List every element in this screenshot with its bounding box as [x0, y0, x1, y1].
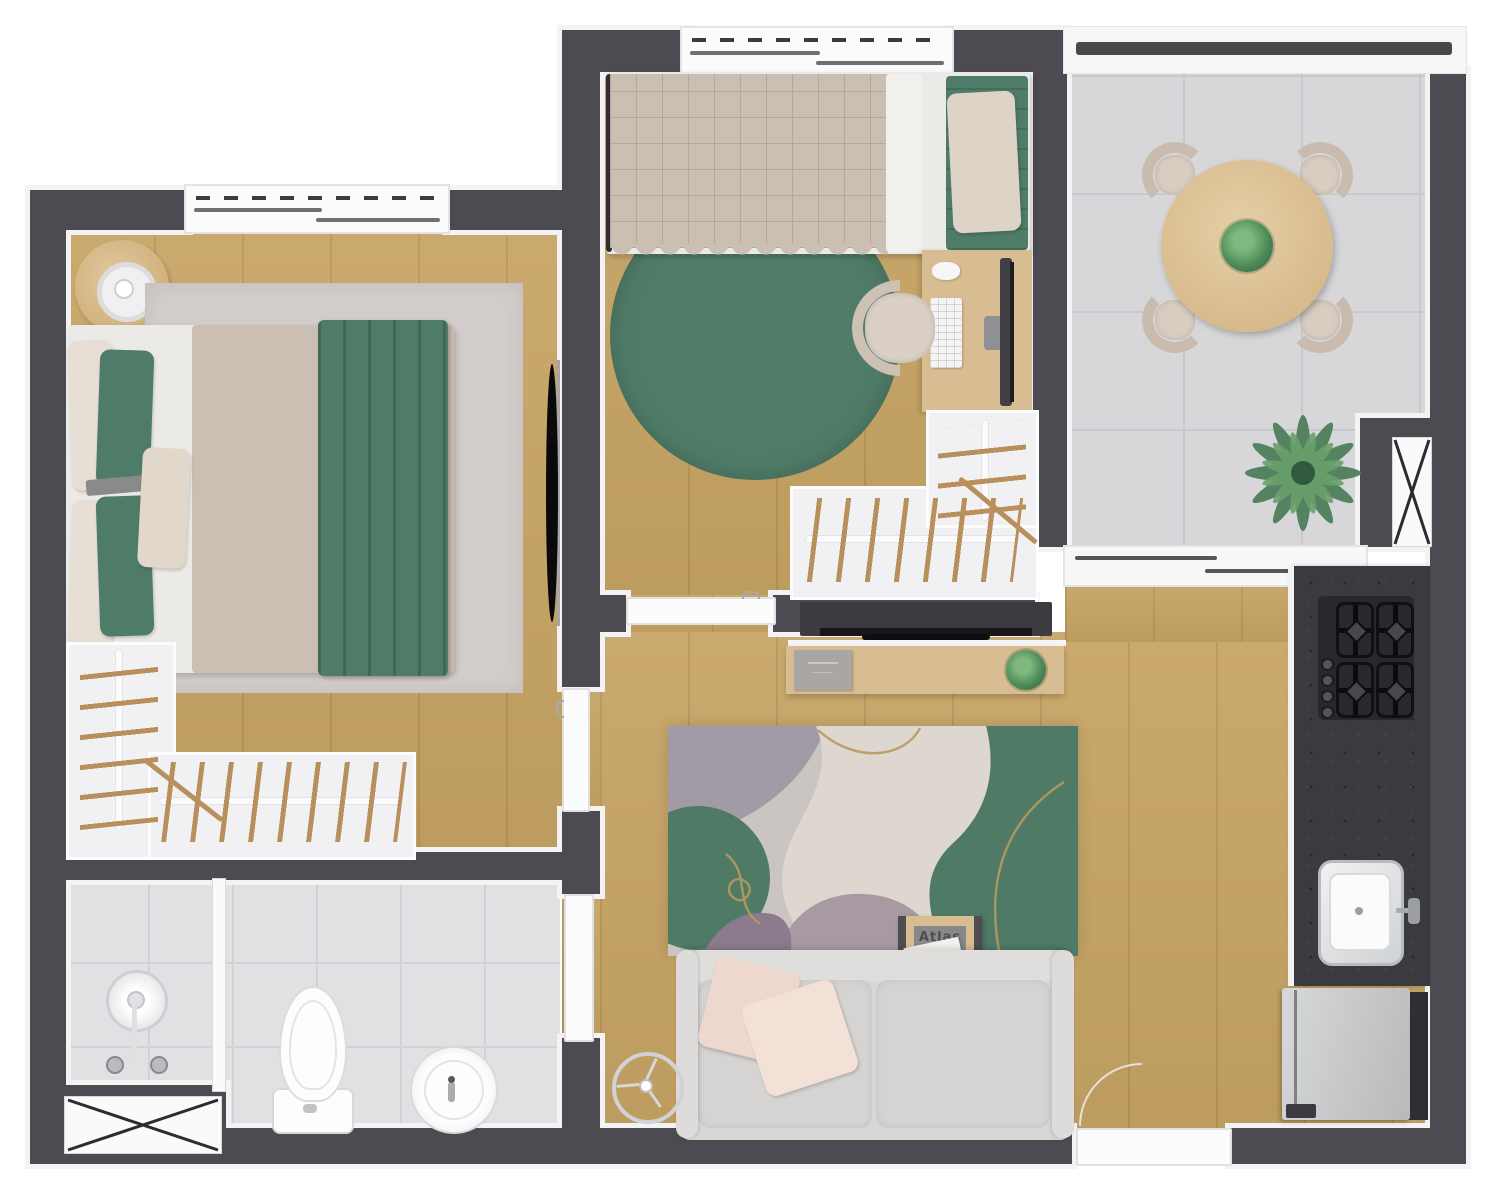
console-book	[794, 650, 852, 690]
kitchen-counter-edge	[1288, 566, 1294, 986]
office-chair-seat	[865, 293, 935, 363]
shower-knob	[106, 1056, 124, 1074]
bedroom1-double-bed	[68, 325, 454, 673]
shower-knob	[150, 1056, 168, 1074]
window-vent-dashes	[692, 38, 942, 42]
bedroom1-table-lamp-top	[114, 279, 134, 299]
shower-arm	[132, 1004, 137, 1062]
fridge-door-seam	[1294, 990, 1297, 1118]
bathroom-door-leaf	[564, 894, 594, 1042]
window-slider	[194, 208, 322, 212]
kitchen-faucet-handle	[1408, 898, 1420, 924]
wall-bedroom2-bottom-left	[598, 595, 626, 632]
bedroom2-door-leaf	[626, 597, 776, 625]
bedroom1-window	[184, 184, 450, 234]
utility-shaft-bathroom	[64, 1096, 222, 1154]
wall-bedroom1-top-left	[30, 190, 188, 230]
cooktop-burner	[1376, 662, 1414, 718]
kitchen-fridge	[1282, 988, 1410, 1120]
wall-bottom-right	[1230, 1128, 1466, 1164]
balcony-railing	[1076, 42, 1452, 55]
balcony-potted-plant	[1238, 408, 1368, 538]
bedroom2-door-handle	[742, 591, 760, 599]
wall-bedroom2-top-left	[598, 30, 690, 72]
sofa-arm	[1052, 950, 1074, 1138]
living-area-rug	[668, 726, 1078, 956]
bedroom1-wall-tv	[546, 364, 558, 622]
toilet-seat-ring	[289, 1000, 337, 1090]
shower-glass-partition	[212, 878, 226, 1092]
cooktop-burner	[1336, 602, 1374, 658]
closet-hangers	[938, 419, 1026, 518]
wall-divider-upper	[562, 30, 600, 687]
cooktop-burner	[1336, 662, 1374, 718]
living-sofa	[680, 950, 1070, 1140]
shaft-x-icon	[65, 1097, 221, 1153]
cooktop-burner	[1376, 602, 1414, 658]
floor-plan: Atlas Ando	[0, 0, 1500, 1195]
sofa-cushion	[876, 980, 1050, 1128]
toilet-flush-button	[303, 1104, 317, 1113]
desk-mouse	[932, 262, 960, 280]
sliding-panel	[1075, 556, 1217, 560]
bedroom2-single-bed	[606, 72, 1030, 254]
wall-divider-mid	[562, 811, 600, 894]
bed-green-runner	[318, 320, 448, 676]
wardrobe-hangers	[80, 654, 158, 830]
wall-divider-lower	[562, 1038, 600, 1134]
wall-left-exterior	[30, 190, 66, 1162]
desk-monitor-screen-edge	[1010, 262, 1014, 402]
bedroom2-window	[680, 26, 954, 78]
floor-lamp-hub	[639, 1079, 653, 1093]
entry-door-swing-arc	[1078, 1062, 1144, 1128]
kitchen-sink	[1318, 860, 1404, 966]
utility-shaft-kitchen	[1392, 437, 1432, 547]
window-slider	[316, 218, 440, 222]
shaft-x-icon	[1393, 438, 1431, 546]
bed-pillow-small	[137, 447, 191, 569]
sink-drain	[1355, 907, 1363, 915]
window-slider	[816, 61, 944, 65]
wall-right-exterior	[1430, 70, 1466, 1162]
cooktop-knob	[1321, 674, 1334, 687]
cooktop-knob	[1321, 658, 1334, 671]
bed-pillow	[946, 90, 1021, 233]
bed-quilt-scallop	[610, 244, 888, 257]
entry-door-leaf	[1076, 1128, 1232, 1166]
cooktop-knob	[1321, 706, 1334, 719]
bedroom1-door-leaf	[562, 688, 590, 812]
office-chair	[852, 280, 948, 376]
window-slider	[690, 51, 820, 55]
window-vent-dashes	[196, 196, 438, 200]
fridge-handle	[1286, 1104, 1316, 1118]
cooktop-knob	[1321, 690, 1334, 703]
bed-sheet-fold	[886, 74, 922, 252]
bathroom-sink-faucet-dot	[448, 1076, 455, 1083]
table-centerpiece-plant	[1221, 220, 1273, 272]
sofa-arm	[676, 950, 698, 1138]
kitchen-cooktop	[1318, 596, 1414, 720]
bathroom-sink-faucet	[448, 1082, 455, 1102]
console-plant	[1006, 650, 1046, 690]
bed-quilt	[610, 74, 888, 248]
bedroom1-door-handle	[556, 700, 564, 718]
